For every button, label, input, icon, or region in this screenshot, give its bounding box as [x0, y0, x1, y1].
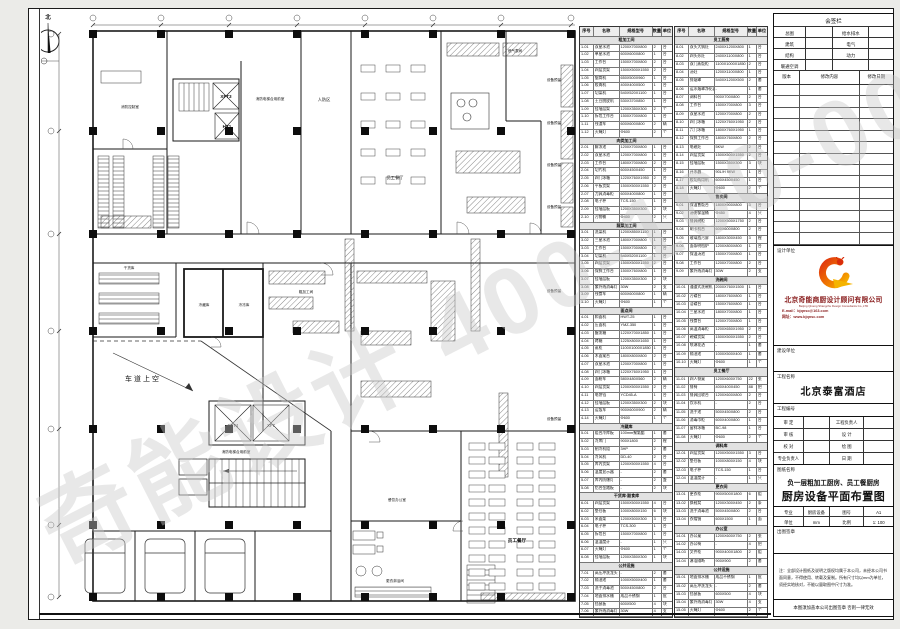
company-name-en: Beijing Qineng Shangchu Design Consultan…	[780, 304, 887, 308]
cell: 2	[653, 161, 662, 168]
copyright-notes: 注：全部设计图纸及说明之版权均属于本公司，未经本公司书面同意，不得使用、转载及复…	[774, 554, 893, 588]
cell: 给水排水	[833, 27, 869, 37]
cell: 2-09	[580, 207, 594, 214]
cell: 2	[653, 122, 662, 129]
cell: 11-05	[675, 410, 689, 417]
cell: 台	[662, 76, 672, 83]
cell: 15-03	[675, 592, 689, 599]
schedule-section-row: 员工餐厅	[675, 368, 767, 376]
drawing-name-label: 图纸名称	[777, 467, 795, 473]
cell: 2	[653, 377, 662, 384]
schedule-row: 9-04刷卡机台600X600X8002台	[675, 227, 767, 235]
cell: 1	[653, 153, 662, 160]
cell: 洗碗间	[675, 277, 767, 283]
cell: 个	[662, 107, 672, 114]
cell: 个	[662, 547, 672, 554]
cell: 台	[757, 103, 767, 110]
schedule-row: 2-08电子秤TCS-1501台	[580, 199, 672, 207]
cell: 12-03	[675, 468, 689, 475]
cell: 压面机	[594, 323, 620, 330]
cell: 2	[653, 184, 662, 191]
cell: -	[715, 401, 748, 408]
schedule-row: 9-09紫外线消毒灯30W2支	[675, 269, 767, 277]
cell: 600X450X450	[620, 168, 653, 175]
cell: 12-04	[675, 476, 689, 483]
design-unit-box: 设计单位 北京奇能商厨设计顾问有限公司 Beijing Qineng Shang…	[774, 246, 893, 346]
schedule-row: 3-02三星水池1800X700X8001台	[580, 238, 672, 246]
cell: 紫外线消毒灯	[689, 600, 715, 607]
schedule-row: 1-01双星水池1200X700X8002台	[580, 45, 672, 53]
cell: 4	[748, 592, 757, 599]
cell: 专业负责人	[774, 453, 804, 464]
cell: 3	[653, 517, 662, 524]
cell: 开水器	[689, 170, 715, 177]
cell: 绞切两用机	[689, 178, 715, 185]
cell: 8-16	[675, 170, 689, 177]
cell: HWT-25	[620, 315, 653, 322]
schedule-row: 1-02单星水池600X600X8001台	[580, 52, 672, 60]
cell: 个	[757, 186, 767, 193]
cell: 台	[662, 99, 672, 106]
seal-box: 出图签章	[774, 527, 893, 554]
cell: 6-02	[580, 509, 594, 516]
cell: 600X500	[715, 592, 748, 599]
schedule-row: 5-04冷风机DD-402台	[580, 455, 672, 463]
cell: Φ600	[620, 300, 653, 307]
cell: 紫外线消毒灯	[689, 269, 715, 276]
cell: 2	[653, 354, 662, 361]
grid-row: 专业负责人日 期	[774, 453, 893, 464]
cell: 11-03	[675, 393, 689, 400]
cell: 电子秤	[594, 524, 620, 531]
cell: 2	[748, 153, 757, 160]
cell: 1	[653, 192, 662, 199]
cell: 4	[653, 602, 662, 609]
cell: 1500X700X800	[620, 114, 653, 121]
cell: 8-14	[675, 153, 689, 160]
schedule-row: 8-16开水器90L/H 9KW1台	[675, 170, 767, 178]
cell: 洗菜机	[594, 230, 620, 237]
cell: 办公椅	[689, 542, 715, 549]
cell: 批	[757, 575, 767, 582]
cell: 11-07	[675, 426, 689, 433]
cell: 温湿度计	[594, 540, 620, 547]
cell: 5-06	[580, 470, 594, 477]
schedule-row: 13-04衣帽镜600X15001面	[675, 517, 767, 525]
cell	[800, 85, 860, 95]
cell: mm	[804, 517, 830, 526]
cell	[864, 453, 893, 464]
cell: 4-12	[580, 401, 594, 408]
grid-row: 审 定工程负责人	[774, 417, 893, 429]
cell: 2	[653, 447, 662, 454]
cell: 台	[757, 54, 767, 61]
revision-empty-row	[774, 131, 893, 142]
cell: 1	[653, 269, 662, 276]
cell: 灭蝇灯	[689, 186, 715, 193]
cell: 2	[748, 145, 757, 152]
cell: 套	[757, 78, 767, 85]
cell	[774, 154, 800, 164]
cell: 9-05	[675, 236, 689, 243]
cell: 14-02	[675, 542, 689, 549]
reserved-label: 设备预留	[547, 77, 562, 82]
cell: 锯骨机	[594, 76, 620, 83]
schedule-row: 8-11六门冰箱1800X760X19501台	[675, 128, 767, 136]
schedule-row: 12-02垫仓板1000X800X1504块	[675, 459, 767, 467]
cell: 14-03	[675, 550, 689, 557]
cell: 名称	[594, 27, 620, 36]
rev-col: 修改内容	[800, 71, 860, 84]
cell: 台	[757, 70, 767, 77]
cell: 1-10	[580, 114, 594, 121]
cell: 9-01	[675, 203, 689, 210]
cell: 4-08	[580, 370, 594, 377]
cell: 面粉车	[594, 377, 620, 384]
cell: 2	[748, 501, 757, 508]
cell: 台	[757, 120, 767, 127]
cell: 台	[757, 219, 767, 226]
cell: 灭蝇灯	[689, 360, 715, 367]
cell: 调料台	[689, 95, 715, 102]
cell: 1	[653, 555, 662, 562]
cell: 块	[662, 486, 672, 493]
cell: 4-14	[580, 416, 594, 423]
cell: 11-06	[675, 418, 689, 425]
cell: 650X500X960	[620, 76, 653, 83]
cell: 单星水池	[594, 52, 620, 59]
cell: 3HP	[620, 447, 653, 454]
schedule-row: 5-07库内防爆灯-2盏	[580, 478, 672, 486]
cell: 1800X760X1950	[715, 128, 748, 135]
cell: 1000X800X150	[620, 509, 653, 516]
schedule-row: 4-12挂墙层板1200X350X3002块	[580, 401, 672, 409]
cell: -	[715, 542, 748, 549]
cell: 8-10	[675, 120, 689, 127]
cell: 冷风机	[594, 455, 620, 462]
cell	[860, 233, 893, 243]
approval-grid: 审 定工程负责人审 核设 计校 对绘 图专业负责人日 期	[774, 417, 893, 465]
cell	[800, 222, 860, 232]
cell	[774, 188, 800, 198]
cell: 餐具回收台	[689, 393, 715, 400]
schedule-section-row: 蔬菜加工间	[580, 223, 672, 231]
cell: 台	[662, 246, 672, 253]
cell: 1500X500X1550	[715, 335, 748, 342]
cell: 2	[748, 112, 757, 119]
cell: 600X1500	[715, 517, 748, 524]
cell: 垫仓板	[594, 509, 620, 516]
cell	[800, 233, 860, 243]
cell: 1	[653, 91, 662, 98]
cell: 库内防爆灯	[594, 478, 620, 485]
cell: 8-08	[675, 103, 689, 110]
cell: 保鲜工作台	[594, 269, 620, 276]
cell: 喷淋花洒	[689, 343, 715, 350]
cell: 刀具消毒柜	[594, 192, 620, 199]
cell: 900X600X900	[620, 408, 653, 415]
cell: 4-07	[580, 362, 594, 369]
driveway-area	[93, 341, 331, 431]
cell	[804, 453, 830, 464]
cell	[860, 222, 893, 232]
schedule-row: 9-08工作台1200X700X8002台	[675, 261, 767, 269]
cell: 1200X300X450	[715, 501, 748, 508]
cell: 1220X760X1950	[620, 370, 653, 377]
schedule-section-row: 肉类加工间	[580, 138, 672, 146]
cell: 1220X700X1850	[620, 331, 653, 338]
cell: Φ450	[715, 211, 748, 218]
cell	[860, 131, 893, 141]
cell	[864, 429, 893, 440]
cell: 600X450X450	[715, 178, 748, 185]
grid-row: 校 对绘 图	[774, 441, 893, 453]
cell: 台	[757, 319, 767, 326]
schedule-row: 8-14四层货架1500X500X15502台	[675, 153, 767, 161]
cell: 办公室	[675, 526, 767, 532]
cell: 6	[653, 509, 662, 516]
schedule-row: 8-01双头大锅灶2400X1200X8001台	[675, 45, 767, 53]
cell: 1200X500X300	[620, 517, 653, 524]
cell: 1200X600X800	[715, 393, 748, 400]
cell: 1	[653, 331, 662, 338]
cell: Φ400	[620, 215, 653, 222]
schedule-row: 4-09面粉车580X480X5602辆	[580, 377, 672, 385]
rev-col: 修改日期	[860, 71, 893, 84]
cell: 1220X760X1950	[715, 120, 748, 127]
cell: 9-08	[675, 261, 689, 268]
cell: 台	[662, 168, 672, 175]
cell: 双星水池	[689, 112, 715, 119]
schedule-row: 6-08挂墙层板1200X350X3001块	[580, 555, 672, 563]
schedule-row: 3-07挂墙层板1200X350X3002块	[580, 277, 672, 285]
cell: 四层货架	[594, 261, 620, 268]
cell	[800, 176, 860, 186]
cell: 台	[757, 468, 767, 475]
cell: 设 计	[830, 429, 865, 440]
reserved-label: 设备预留	[547, 120, 562, 125]
cell: 14-01	[675, 534, 689, 541]
cell: 公共设施	[675, 567, 767, 573]
cell: 2	[748, 401, 757, 408]
cell	[833, 60, 869, 70]
cell: 1-04	[580, 68, 594, 75]
cell: 5-01	[580, 431, 594, 438]
cell: 1	[653, 323, 662, 330]
cell: 台	[662, 339, 672, 346]
cell: 樘	[757, 236, 767, 243]
schedule-row: 11-04饮水机-2台	[675, 401, 767, 409]
cell: 双星水池	[594, 153, 620, 160]
cell: 8-04	[675, 70, 689, 77]
cell: 樘	[662, 439, 672, 446]
cell: 2	[748, 550, 757, 557]
cell: 高温消毒柜	[689, 327, 715, 334]
schedule-row: 7-02隔油池1000X500X4001套	[580, 578, 672, 586]
cell	[869, 38, 893, 48]
cell: YCD45-A	[620, 393, 653, 400]
schedule-row: 1-11残渣车600X600X8002辆	[580, 122, 672, 130]
cell: 1	[748, 319, 757, 326]
cell: 电磁灶	[689, 145, 715, 152]
cell	[800, 142, 860, 152]
cell: 刷卡机台	[689, 227, 715, 234]
cell: 工作台	[594, 246, 620, 253]
cell: 4-05	[580, 346, 594, 353]
schedule-row: 2-06平板货架1500X500X15502台	[580, 184, 672, 192]
cell	[860, 142, 893, 152]
cell: 2	[653, 478, 662, 485]
cell: 玻璃挡污屏	[689, 236, 715, 243]
cell: 900X1800	[620, 439, 653, 446]
cell: Φ600	[715, 360, 748, 367]
cell: 工作台	[594, 60, 620, 67]
cell: Φ600	[620, 416, 653, 423]
cell: 1200X700X800	[620, 362, 653, 369]
schedule-row: 14-02办公椅-4把	[675, 542, 767, 550]
cell	[800, 165, 860, 175]
cell: 1800X700X800	[715, 310, 748, 317]
cell: 组	[757, 550, 767, 557]
cell: 台	[662, 586, 672, 593]
cell: 1200X350X300	[620, 555, 653, 562]
cell: 暖通空调	[774, 60, 806, 70]
cell: 套	[662, 470, 672, 477]
cell: 1	[748, 310, 757, 317]
sheet-frame: 北 消防控制室 XFT3 HT1 消防电梯合用前室 人防区 燃气表间 员工餐厅 …	[28, 8, 894, 620]
schedule-row: 3-08紫外线消毒灯30W2支	[580, 285, 672, 293]
cell: 四层货架	[594, 68, 620, 75]
cell: 台	[662, 370, 672, 377]
cell: 2	[748, 186, 757, 193]
cell: 1500X500X1550	[620, 261, 653, 268]
cell: 四层货架	[689, 153, 715, 160]
cell: 1	[748, 426, 757, 433]
cell: 台	[757, 509, 767, 516]
equipment-schedule-table-1: 序号名称规格型号数量单位粗加工间1-01双星水池1200X700X8002台1-…	[579, 26, 673, 618]
cell: 四门冰箱	[594, 370, 620, 377]
cell: 汤灶	[689, 70, 715, 77]
cell: 1-12	[580, 130, 594, 137]
cell: 4-09	[580, 377, 594, 384]
cell: 2	[748, 78, 757, 85]
cell: 保温售饭台	[689, 203, 715, 210]
cell	[806, 60, 833, 70]
cell: 1200X800X800	[715, 244, 748, 251]
cell: 土豆脱皮机	[594, 99, 620, 106]
cell: 电子秤	[689, 468, 715, 475]
cell: 块	[757, 592, 767, 599]
cell: 1500X700X800	[715, 252, 748, 259]
cell: 残食车	[594, 292, 620, 299]
room-label: 员工餐厅	[508, 537, 527, 544]
cell: 工程负责人	[830, 417, 865, 428]
cell: 台	[757, 203, 767, 210]
revision-header: 版本 修改内容 修改日期	[774, 71, 893, 85]
cell	[800, 119, 860, 129]
schedule-row: 8-13电磁灶5KW2台	[675, 145, 767, 153]
schedule-row: 2-09挂墙层板1200X350X3002块	[580, 207, 672, 215]
schedule-row: 7-05挡鼠板600X5004块	[580, 602, 672, 610]
cell: 调料库	[675, 443, 767, 449]
cell: 2	[653, 215, 662, 222]
cell: 台	[757, 178, 767, 185]
cell	[806, 38, 833, 48]
schedule-row: 3-10灭蝇灯Φ6001个	[580, 300, 672, 308]
cell: 只	[662, 215, 672, 222]
revision-empty-row	[774, 165, 893, 176]
drawing-subtitle: 负一层粗加工厨房、员工餐厨房	[774, 477, 893, 487]
cell	[804, 441, 830, 452]
cell: 1220X760X1950	[620, 176, 653, 183]
cell: 2-01	[580, 145, 594, 152]
cell: 1500X500X1550	[620, 184, 653, 191]
schedule-row: 6-04电子秤TCS-3001台	[580, 524, 672, 532]
cell: 8-09	[675, 112, 689, 119]
cell: 保温汤池	[689, 252, 715, 259]
cell: 块	[662, 509, 672, 516]
cell: 2	[653, 408, 662, 415]
cell: 2	[653, 455, 662, 462]
cell: 块	[662, 602, 672, 609]
schedule-row: 11-07留样冰箱BC-981台	[675, 426, 767, 434]
revision-empty-row	[774, 233, 893, 244]
cell: 30W	[620, 285, 653, 292]
cell	[860, 211, 893, 221]
cell: -	[620, 470, 653, 477]
cell: 2	[748, 136, 757, 143]
cell: 600X600X800	[620, 52, 653, 59]
cell: 1	[653, 199, 662, 206]
cell: 3-07	[580, 277, 594, 284]
cell: 序号	[580, 27, 594, 36]
binding-margin-line	[39, 9, 40, 619]
cell: 台	[662, 60, 672, 67]
cell: 7-03	[580, 586, 594, 593]
schedule-row: 10-10灭蝇灯Φ6001个	[675, 360, 767, 368]
revision-empty-row	[774, 85, 893, 96]
cell: 套	[757, 584, 767, 591]
cell: 挡鼠板	[689, 592, 715, 599]
cell: 2	[748, 227, 757, 234]
cell: 6-07	[580, 547, 594, 554]
cell: 8-17	[675, 178, 689, 185]
cell: 套	[662, 571, 672, 578]
cell: 3-06	[580, 269, 594, 276]
cell: 台	[757, 393, 767, 400]
cell: 淋浴隔断	[689, 559, 715, 566]
cell: 1500X500X1550	[715, 153, 748, 160]
cell: 套	[662, 447, 672, 454]
cell: 1	[653, 230, 662, 237]
elevator-label: XF7	[267, 423, 275, 428]
cell: 台	[662, 331, 672, 338]
cell: 洗手池	[689, 410, 715, 417]
cell: 成品不锈钢	[715, 575, 748, 582]
cell: 4	[748, 542, 757, 549]
cell: 1	[748, 360, 757, 367]
cell: 平板货架	[594, 184, 620, 191]
cell: 3-08	[580, 285, 594, 292]
cell: 7-02	[580, 578, 594, 585]
cell: 制冷机组	[594, 447, 620, 454]
cell: 2	[653, 401, 662, 408]
cell: 1200X600X750	[715, 534, 748, 541]
room-label: 消防电梯合用前室	[256, 96, 285, 101]
cell: 1200X700X800	[620, 45, 653, 52]
cell: 三星水池	[689, 310, 715, 317]
cell: 4	[653, 501, 662, 508]
